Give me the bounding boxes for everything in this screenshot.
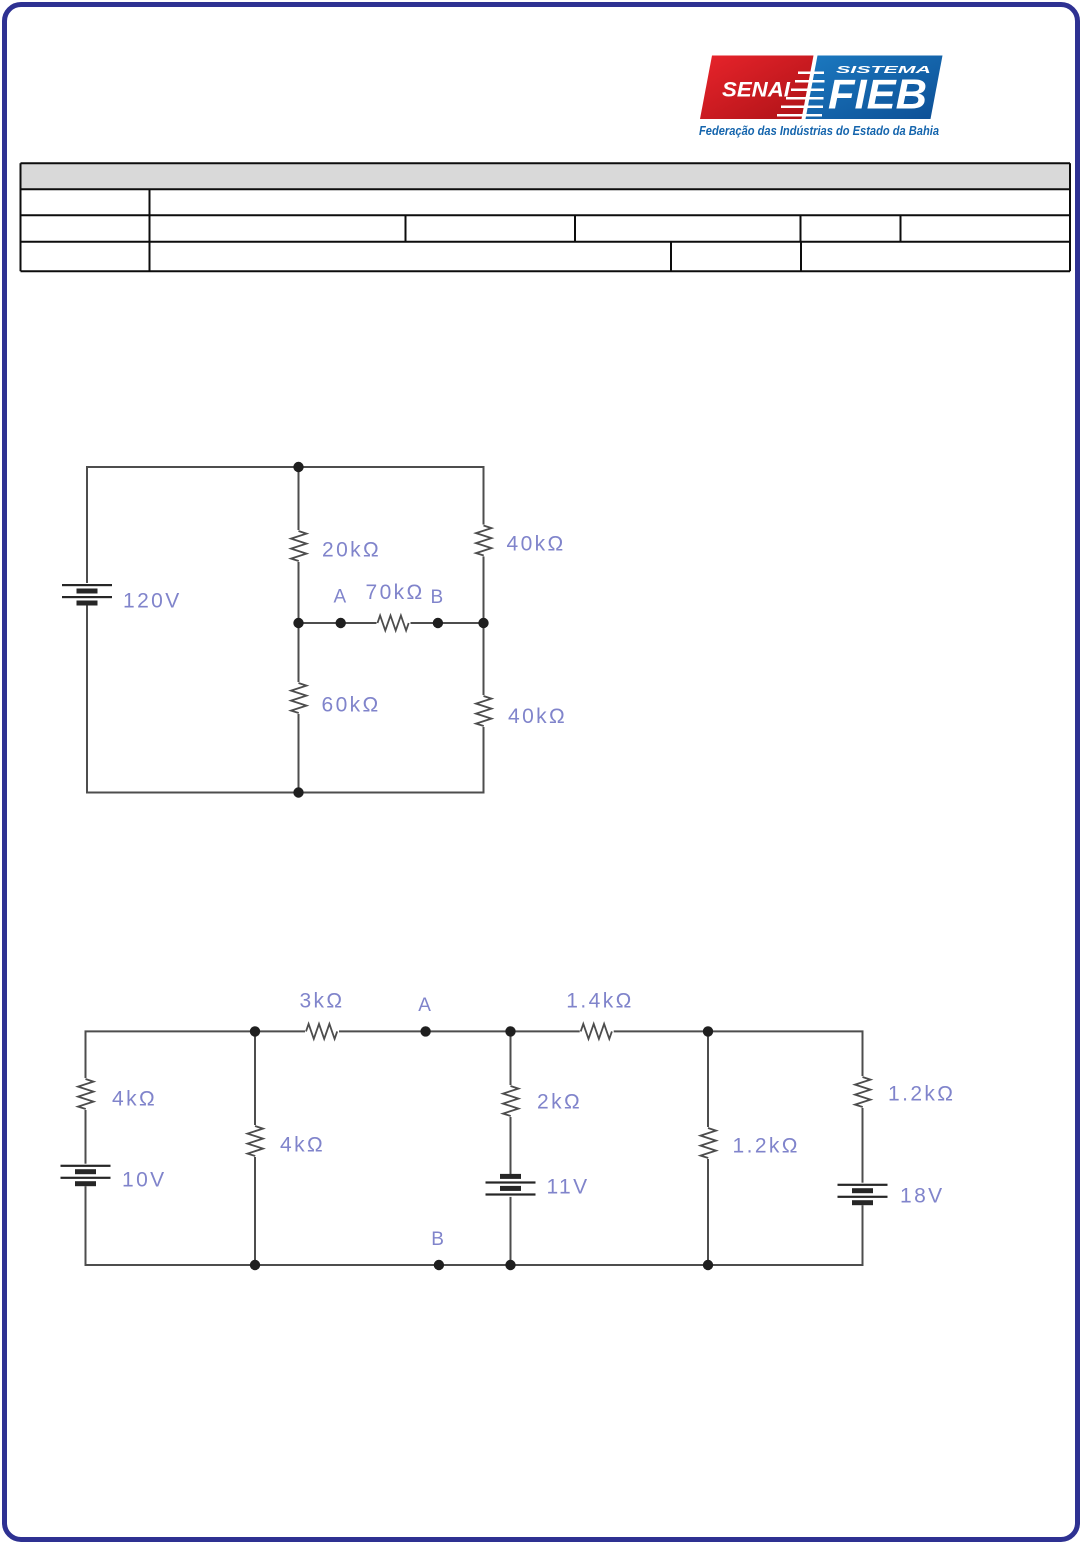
- svg-text:A: A: [418, 995, 433, 1016]
- svg-text:B: B: [430, 587, 445, 608]
- svg-text:11V: 11V: [547, 1176, 590, 1199]
- svg-text:A: A: [333, 587, 348, 608]
- svg-text:1.2kΩ: 1.2kΩ: [733, 1134, 800, 1157]
- svg-text:60kΩ: 60kΩ: [322, 694, 381, 717]
- svg-text:2kΩ: 2kΩ: [537, 1091, 582, 1114]
- svg-text:1.4kΩ: 1.4kΩ: [566, 990, 633, 1013]
- svg-text:120V: 120V: [123, 590, 182, 613]
- svg-text:4kΩ: 4kΩ: [112, 1088, 157, 1111]
- svg-text:18V: 18V: [900, 1185, 945, 1208]
- svg-text:40kΩ: 40kΩ: [507, 533, 566, 556]
- svg-text:B: B: [431, 1229, 446, 1250]
- svg-text:4kΩ: 4kΩ: [280, 1134, 325, 1157]
- svg-text:40kΩ: 40kΩ: [508, 705, 567, 728]
- svg-text:10V: 10V: [122, 1169, 167, 1192]
- svg-text:1.2kΩ: 1.2kΩ: [888, 1083, 955, 1106]
- svg-text:20kΩ: 20kΩ: [322, 539, 381, 562]
- svg-text:3kΩ: 3kΩ: [299, 990, 344, 1013]
- svg-text:70kΩ: 70kΩ: [366, 581, 425, 604]
